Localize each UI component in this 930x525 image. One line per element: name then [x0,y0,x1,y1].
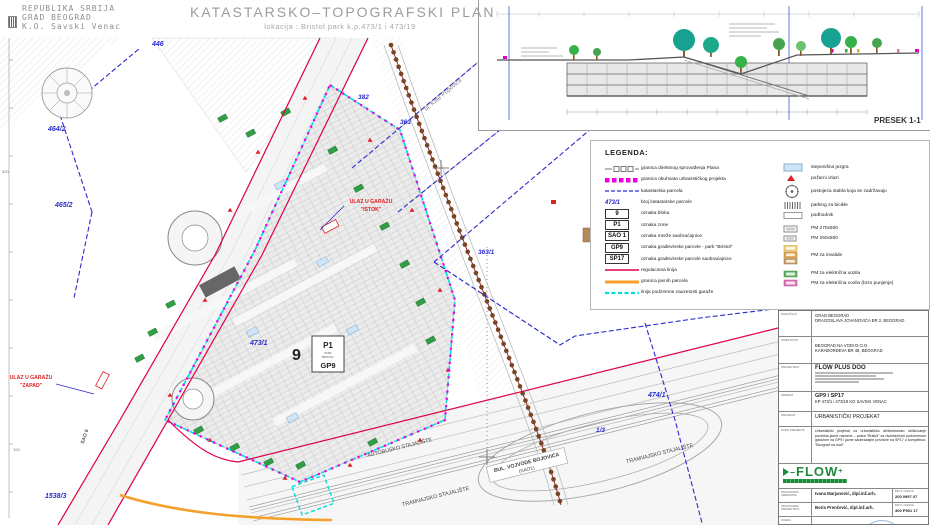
svg-text:363: 363 [400,119,411,126]
stamp-seal-icon [860,520,904,524]
header-country: REPUBLIKA SRBIJA [22,4,121,13]
pm-electric-fast-icon [783,279,811,287]
header-municipality: K.O. Savski Venac [22,22,121,31]
legend-item: granica direktnog sprovođenja Plana [605,163,783,174]
legend-item: PM 270x500 [783,225,923,233]
engineer-license: 300 P501 17 [895,508,927,513]
circular-structure [42,68,92,118]
sheet-title: KATASTARSKO–TOPOGRAFSKI PLAN lokacija : … [190,4,490,31]
row-label: ODGOVORNI PROJEKTANT [779,503,812,516]
legend-item: parking za bicikle [783,201,923,210]
svg-text:"ZAPAD": "ZAPAD" [20,383,43,389]
cadastral-parcel-icon [605,188,641,194]
legend-title: LEGENDA: [605,148,923,157]
section-drawing: PRESEK 1-1 [479,0,930,129]
svg-text:382: 382 [358,94,369,101]
svg-text:PARK: PARK [324,351,331,355]
legend-item: PM za električna vozila [783,270,923,278]
license-label: BROJ LICENCE [895,504,927,507]
street-label-sao6: SAO 6 [80,428,90,444]
header-city: GRAD BEOGRAD [22,13,121,22]
title-block-row-stamp: OVERA [779,517,928,524]
stair-core-icon [783,163,811,172]
legend-item: PM za invalide [783,245,923,265]
svg-text:1/3: 1/3 [596,427,605,434]
project-boundary-icon [605,176,641,184]
row-label: OBJEKAT [779,392,812,411]
barcode-glyph [8,16,17,28]
page-subtitle: lokacija : Bristol park k.p.473/1 i 473/… [190,22,490,31]
client-address: DRAGOSLAVA JOVANOVIĆA BR 2, BEOGRAD [815,318,926,323]
legend-item: PM 250x500 [783,235,923,242]
row-label: NAZIV PROJEKTA [779,427,812,463]
legend-item: požarni izlazi [783,174,923,183]
fire-exit-icon [783,174,811,183]
row-label: PROJEKAT [779,412,812,426]
document-type: URBANISTIČKI PROJEKAT [812,412,928,426]
svg-text:1538/3: 1538/3 [45,493,67,500]
pm-disabled-icon [783,245,811,265]
legend-item: granica javnih parcela [605,276,783,287]
block-box: 9 [605,209,629,219]
section-panel: PRESEK 1-1 [478,0,930,131]
regulation-line-icon [605,267,641,273]
parcel-number-sample: 473/1 [605,200,641,206]
legend-item: regulaciona linija [605,265,783,276]
legend-item: granica obuhvata urbanističkog projekta [605,174,783,185]
urbanist-name: Ivana Marjanović, dipl.inž.arh. [812,489,892,502]
legend-item: GP9 oznaka građevinske parcele - park "B… [605,242,783,253]
logo-plus: + [838,469,842,475]
svg-text:P1: P1 [323,341,333,350]
row-label: INVESTITOR [779,337,812,363]
section-label: PRESEK 1-1 [874,116,921,125]
legend-item: linija podzemne zauzetosti garaže [605,287,783,298]
pm-250-icon [783,235,811,242]
svg-text:ULAZ U GARAŽU: ULAZ U GARAŽU [350,197,393,205]
legend-item: katastarska parcela [605,186,783,197]
stamp-area [812,517,928,524]
logo-text: FLOW [796,466,838,478]
page-title: KATASTARSKO–TOPOGRAFSKI PLAN [190,4,490,20]
svg-text:363/1: 363/1 [478,249,495,256]
urbanist-license: 200 0997 07 [895,494,927,499]
legend-item: 9 oznaka bloka [605,208,783,219]
legend: LEGENDA: granica direktnog sprovođenja P… [590,140,930,310]
svg-text:ULAZ U GARAŽU: ULAZ U GARAŽU [10,373,53,381]
garage-line-icon [605,290,641,296]
designer-name: FLOW PLUS DOO [815,366,926,371]
bike-parking-icon [783,201,811,210]
plan-boundary-icon [605,165,641,173]
zone-box: P1 [605,220,629,230]
underpass-icon [783,211,811,220]
title-block-row-object: OBJEKAT GP9 i SP17 KP 473/1 i 473/19 KO … [779,392,928,412]
legend-item: SAO 1 oznaka mreže saobraćajnice [605,231,783,242]
svg-text:464/2: 464/2 [47,126,66,133]
row-label: OVERA [779,517,812,524]
svg-text:"BRISTOL": "BRISTOL" [321,355,334,359]
pm-270-icon [783,225,811,233]
sheet-header: REPUBLIKA SRBIJA GRAD BEOGRAD K.O. Savsk… [22,4,121,31]
title-block-row-urbanist: ODGOVORNI URBANISTA Ivana Marjanović, di… [779,489,928,503]
svg-text:474/1: 474/1 [647,392,666,399]
legend-item: postojeća stabla koja se zadržavaju [783,184,923,199]
svg-text:446: 446 [151,41,164,48]
logo-bar [783,479,847,483]
legend-item: 473/1 broj katastarske parcele [605,197,783,208]
title-block-row-designer: PROJEKTANT FLOW PLUS DOO [779,364,928,392]
svg-text:"ISTOK": "ISTOK" [361,207,382,213]
object-parcels: KP 473/1 i 473/19 KO SAVSKI VENAC [815,399,926,404]
ruler-label: 100 [13,447,20,452]
sao-box: SAO 1 [605,231,629,241]
legend-item: SP17 oznaka građevinske parcele saobraća… [605,253,783,264]
license-label: BROJ LICENCE [895,490,927,493]
title-block-row-description: NAZIV PROJEKTA Urbanistički projekat za … [779,427,928,464]
sp-box: SP17 [605,254,629,264]
project-description: Urbanistički projekat za urbanističko ar… [812,427,928,463]
legend-left-column: granica direktnog sprovođenja Plana gran… [605,163,783,299]
investor-address: KARAĐORĐEVA BR 48, BEOGRAD [815,348,926,353]
svg-text:473/1: 473/1 [249,340,268,347]
legend-item: PM za električna vozila (brzo punjenje) [783,279,923,287]
title-block-row-client: NARUČILAC GRAD BEOGRAD DRAGOSLAVA JOVANO… [779,311,928,337]
legend-right-column: stepenišna jezgra požarni izlazi [783,163,923,299]
title-block: NARUČILAC GRAD BEOGRAD DRAGOSLAVA JOVANO… [778,310,929,525]
existing-tree-icon [783,184,811,199]
ruler-label: 300 [2,169,9,174]
gp-box: GP9 [605,243,629,253]
engineer-name: Boris Prenčević, dipl.inž.arh. [812,503,892,516]
legend-item: podhodnik [783,211,923,220]
title-block-row-engineer: ODGOVORNI PROJEKTANT Boris Prenčević, di… [779,503,928,517]
legend-item: P1 oznaka zone [605,219,783,230]
logo-chevron-icon [783,468,789,476]
title-block-row-doc: PROJEKAT URBANISTIČKI PROJEKAT [779,412,928,427]
svg-text:9: 9 [292,347,301,364]
pm-electric-icon [783,270,811,278]
row-label: PROJEKTANT [779,364,812,391]
row-label: ODGOVORNI URBANISTA [779,489,812,502]
svg-text:465/2: 465/2 [54,202,73,209]
flow-logo: – FLOW + [779,464,847,488]
row-label: NARUČILAC [779,311,812,336]
section-garage [567,63,867,96]
street-label-kate: ul. Kate Popovića [424,78,464,113]
title-block-row-logo: – FLOW + [779,464,928,489]
plan-sheet: 300 100 446 464/2 465/2 382 363 363/1 47… [0,0,930,525]
title-block-row-investor: INVESTITOR BEOGRAD NA VODI D.O.O. KARAĐO… [779,337,928,364]
svg-text:GP9: GP9 [320,361,335,370]
legend-item: stepenišna jezgra [783,163,923,172]
public-parcel-line-icon [605,279,641,285]
